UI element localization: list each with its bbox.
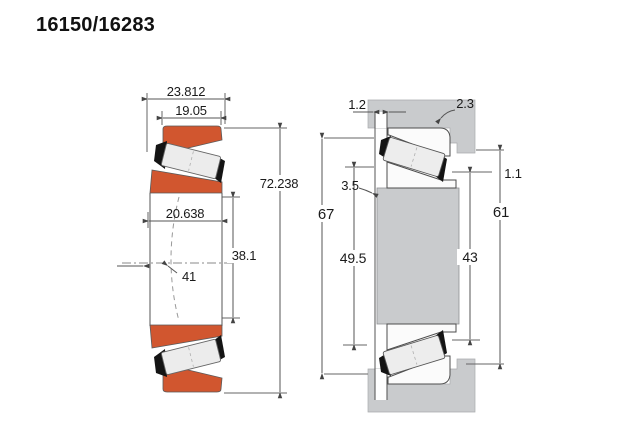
dim-shaft-fillet: 1.2 [348,97,365,112]
dim-outer-diameter: 72.238 [260,176,299,191]
dim-bore-diameter: 38.1 [232,248,257,263]
dim-left-outer-diameter: 67 [318,206,334,223]
dim-housing-abutment: 61 [493,204,509,221]
page-title: 16150/16283 [36,14,155,37]
dim-housing-step: 1.1 [504,166,521,181]
shoulder-gap [376,369,387,400]
dim-cone-backface: 43 [462,249,478,265]
raceway-leader [168,266,177,273]
bearing-cross-section-figure: 23.812 19.05 20.638 38.1 72.238 41 [117,84,304,393]
dim-total-width: 23.812 [167,84,206,99]
dim-raceway: 41 [182,269,196,284]
dim-housing-fillet: 2.3 [456,96,473,111]
shoulder-gap [376,112,387,128]
dim-shoulder-fillet: 3.5 [341,178,358,193]
dim-cup-width: 19.05 [175,103,207,118]
dim-cone-width: 20.638 [166,206,205,221]
shaft-section [377,188,459,324]
technical-drawing: 23.812 19.05 20.638 38.1 72.238 41 [0,0,640,440]
mounting-drawing-figure: 1.2 2.3 3.5 67 49.5 61 1.1 43 [311,96,522,412]
dim-shaft-abutment: 49.5 [340,250,367,266]
drawing-page: 16150/16283 [0,0,640,440]
